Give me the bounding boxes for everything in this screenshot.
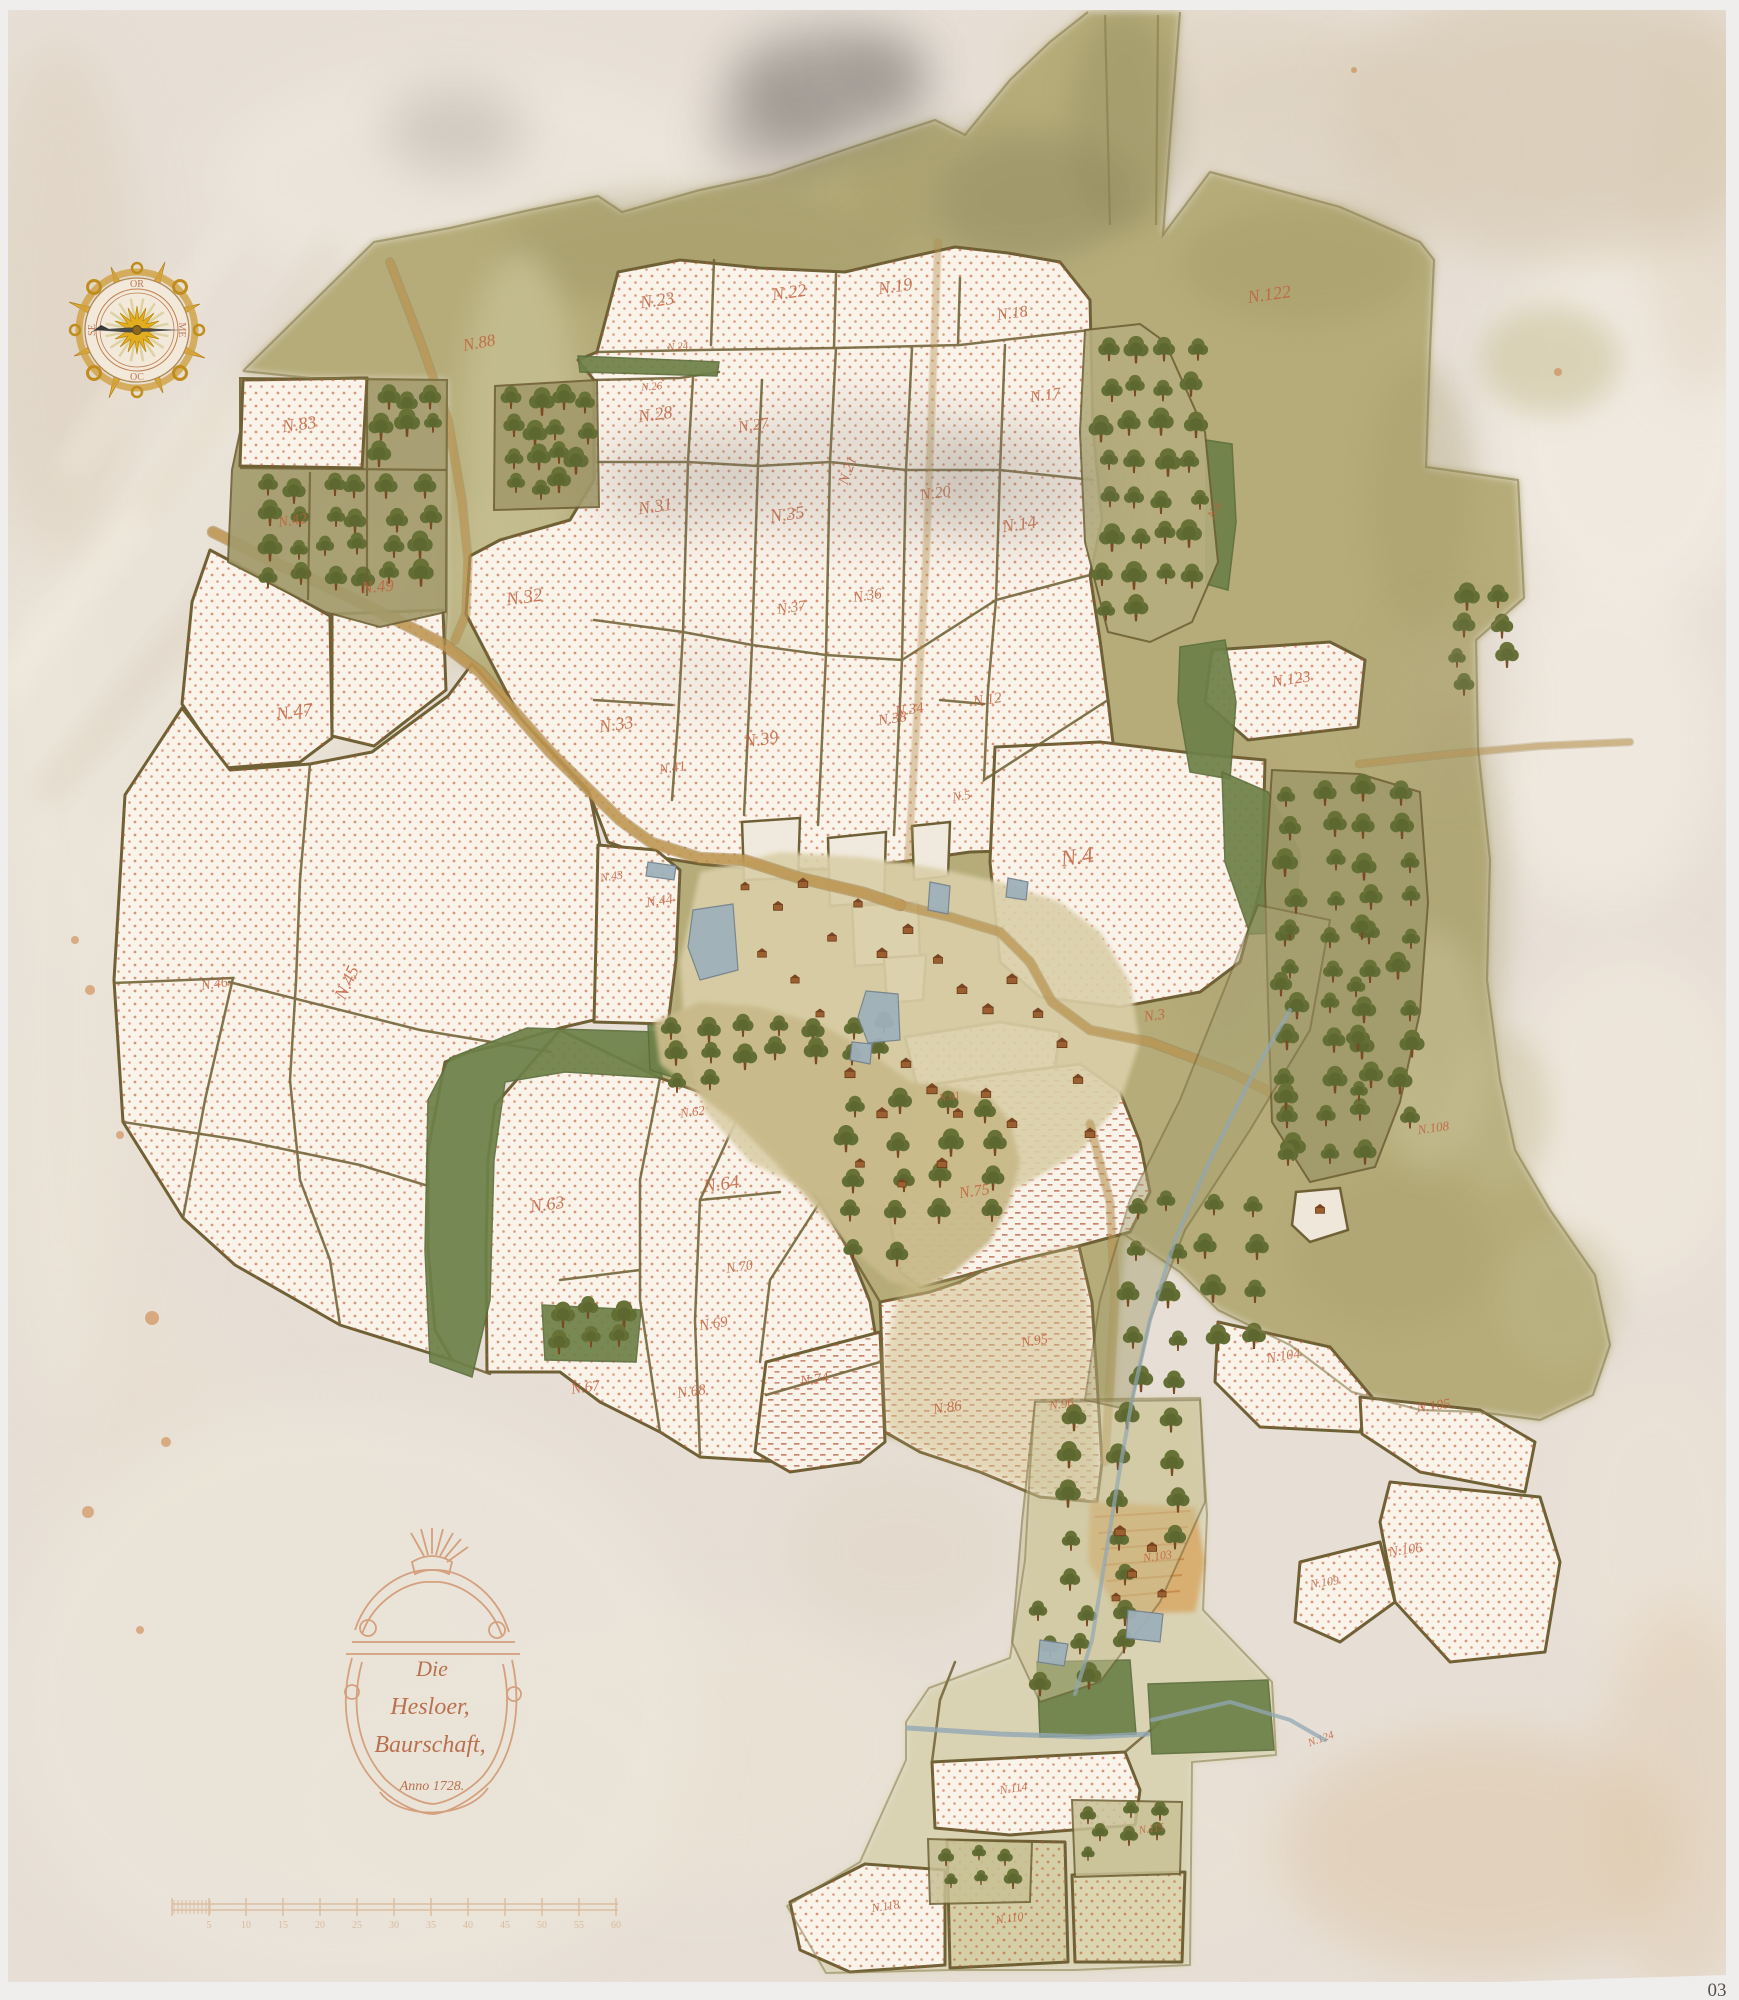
svg-text:5: 5 — [207, 1920, 212, 1931]
svg-text:30: 30 — [389, 1920, 399, 1931]
svg-text:40: 40 — [463, 1920, 473, 1931]
svg-text:Die: Die — [415, 1656, 448, 1681]
svg-text:55: 55 — [574, 1920, 584, 1931]
svg-text:N.24: N.24 — [666, 340, 690, 354]
svg-text:10: 10 — [241, 1920, 251, 1931]
svg-text:N.4: N.4 — [1058, 842, 1095, 871]
svg-text:03: 03 — [1708, 1980, 1727, 2000]
svg-text:N.49: N.49 — [359, 576, 395, 598]
svg-text:60: 60 — [611, 1920, 621, 1931]
svg-text:45: 45 — [500, 1920, 510, 1931]
svg-text:Anno 1728.: Anno 1728. — [399, 1779, 465, 1794]
svg-text:Baurschaft,: Baurschaft, — [374, 1732, 485, 1758]
svg-text:Hesloer,: Hesloer, — [389, 1694, 469, 1720]
svg-text:35: 35 — [426, 1920, 436, 1931]
svg-text:SE: SE — [87, 324, 98, 336]
svg-text:20: 20 — [315, 1920, 325, 1931]
svg-text:25: 25 — [352, 1920, 362, 1931]
svg-text:ME: ME — [176, 323, 187, 338]
svg-text:OC: OC — [130, 372, 144, 383]
svg-text:OR: OR — [130, 279, 144, 290]
svg-text:50: 50 — [537, 1920, 547, 1931]
svg-text:N.3: N.3 — [1142, 1007, 1166, 1026]
svg-text:N.5: N.5 — [950, 787, 972, 805]
svg-text:15: 15 — [278, 1920, 288, 1931]
svg-text:N.26: N.26 — [640, 380, 664, 394]
